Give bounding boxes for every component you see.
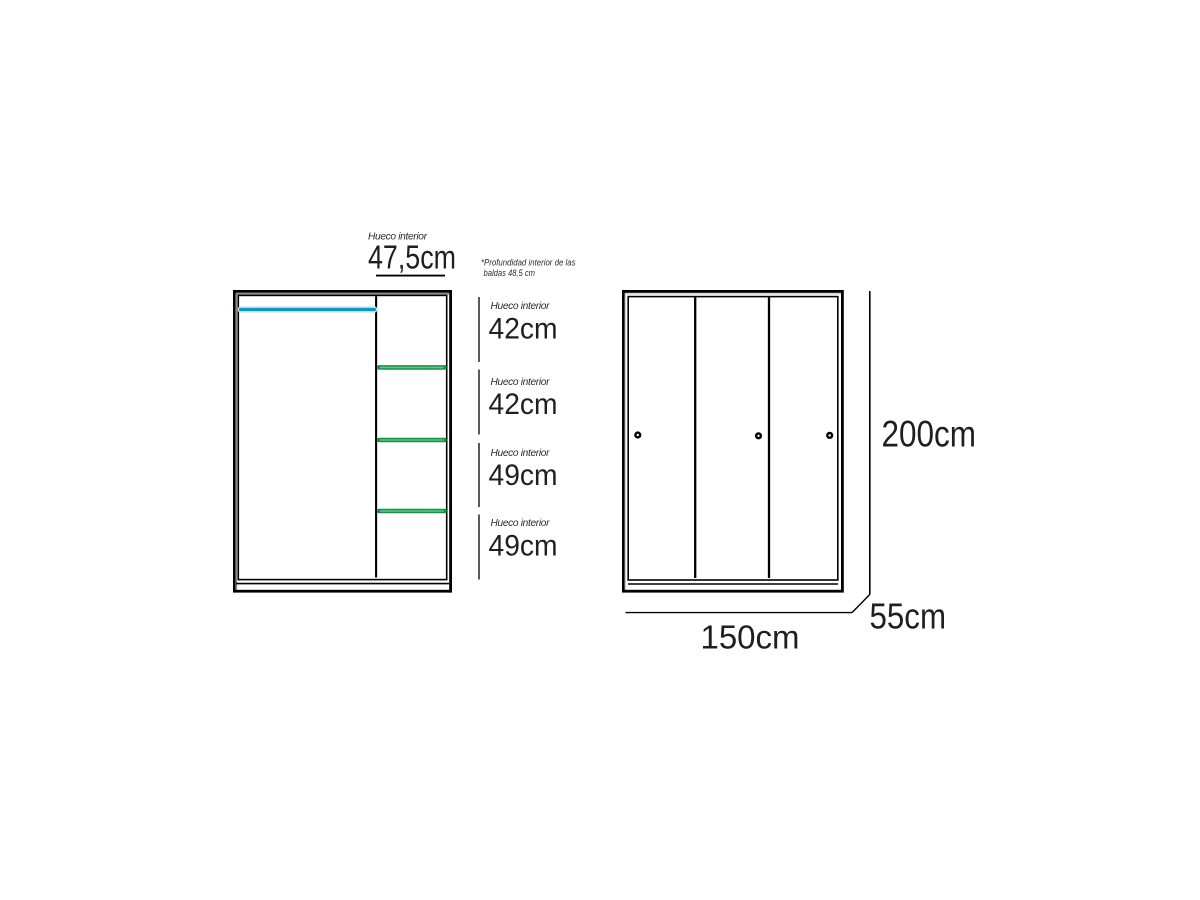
svg-text:150cm: 150cm (701, 619, 800, 656)
svg-text:55cm: 55cm (870, 595, 947, 636)
svg-text:47,5cm: 47,5cm (368, 240, 456, 277)
svg-text:42cm: 42cm (489, 312, 558, 345)
svg-text:baldas 48,5 cm: baldas 48,5 cm (484, 268, 536, 278)
svg-text:42cm: 42cm (489, 388, 558, 421)
svg-text:49cm: 49cm (489, 530, 558, 563)
svg-text:49cm: 49cm (489, 459, 558, 492)
svg-text:Hueco interior: Hueco interior (491, 448, 551, 459)
svg-text:200cm: 200cm (882, 414, 977, 455)
svg-text:Hueco interior: Hueco interior (491, 301, 551, 312)
svg-text:Hueco interior: Hueco interior (491, 518, 551, 529)
svg-text:*Profundidad interior de las: *Profundidad interior de las (481, 258, 576, 268)
svg-text:Hueco interior: Hueco interior (491, 377, 551, 388)
